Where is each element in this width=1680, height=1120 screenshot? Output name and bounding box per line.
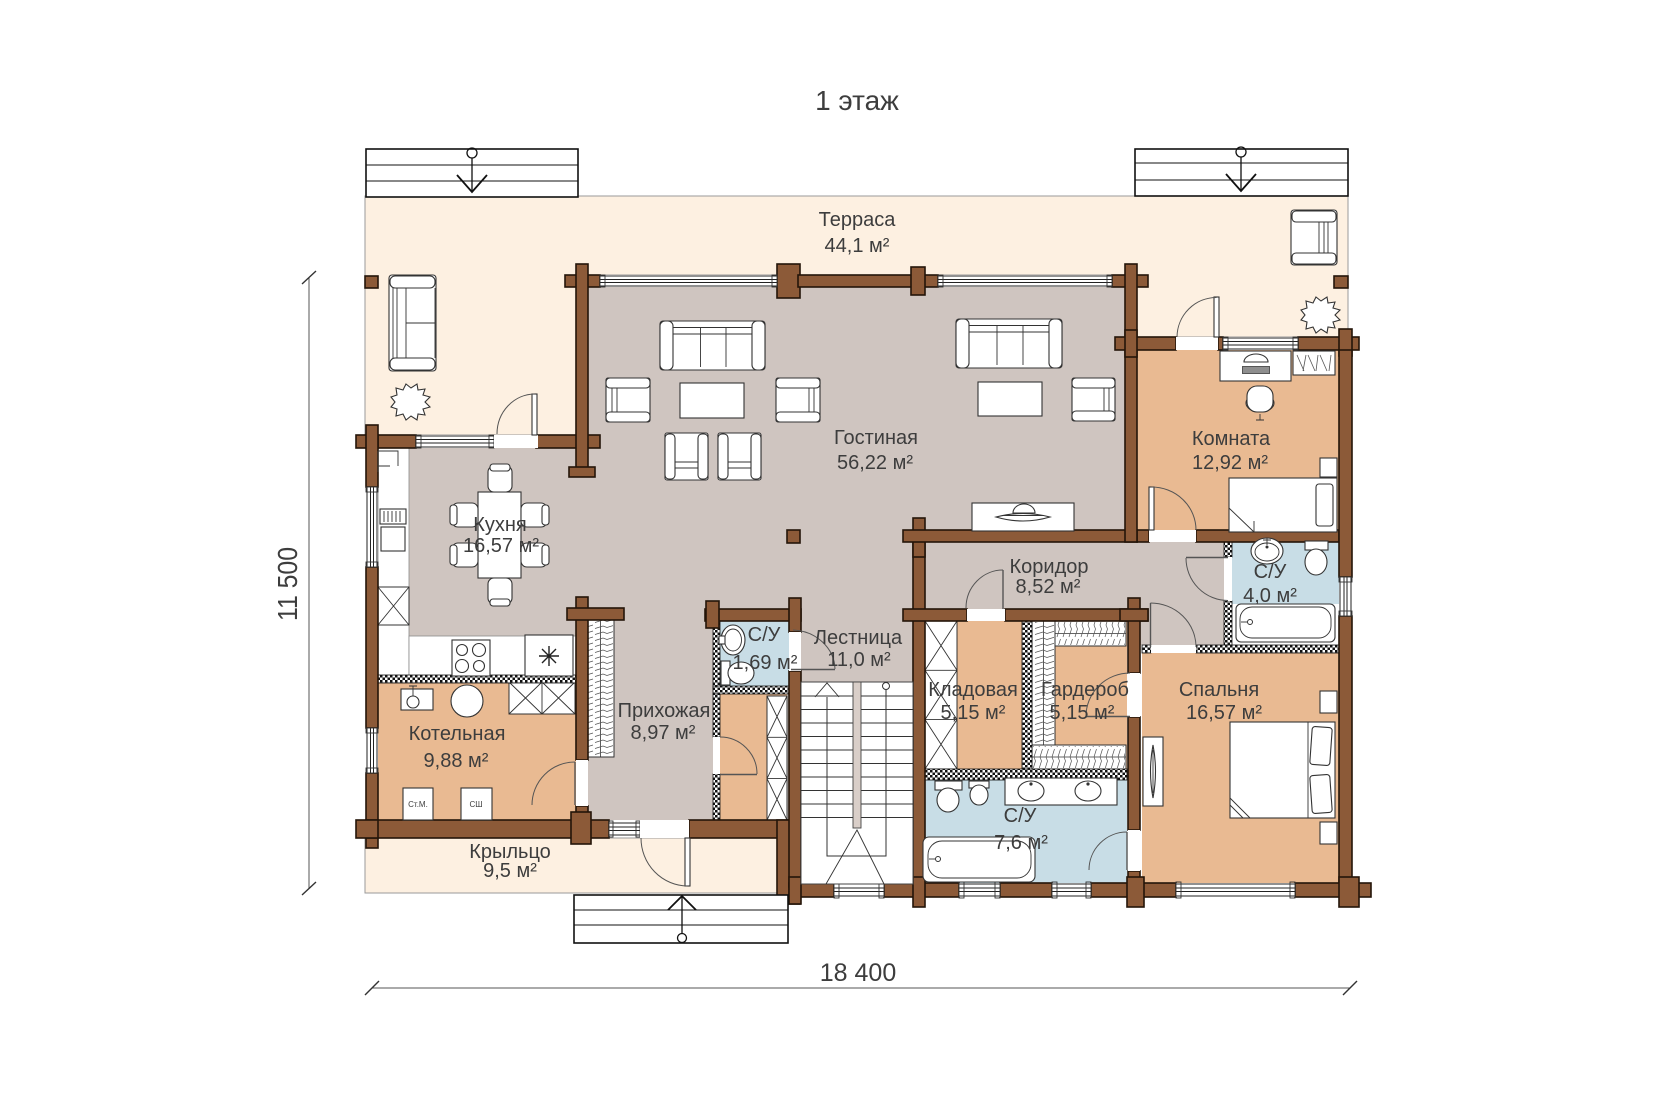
svg-text:Гостиная: Гостиная (834, 427, 918, 449)
svg-text:Спальня: Спальня (1179, 679, 1259, 701)
svg-text:5,15 м²: 5,15 м² (941, 702, 1006, 724)
svg-text:Котельная: Котельная (409, 723, 506, 745)
svg-text:Прихожая: Прихожая (618, 700, 711, 722)
svg-text:16,57 м²: 16,57 м² (1186, 702, 1262, 724)
svg-text:С/У: С/У (748, 624, 781, 646)
svg-text:1 этаж: 1 этаж (815, 85, 899, 116)
svg-text:9,88 м²: 9,88 м² (424, 750, 489, 772)
svg-text:4,0 м²: 4,0 м² (1243, 585, 1297, 607)
svg-text:Лестница: Лестница (814, 627, 903, 649)
svg-text:16,57 м²: 16,57 м² (463, 535, 539, 557)
svg-text:56,22 м²: 56,22 м² (837, 452, 913, 474)
svg-text:Кладовая: Кладовая (928, 679, 1018, 701)
svg-text:8,52 м²: 8,52 м² (1016, 576, 1081, 598)
svg-text:44,1 м²: 44,1 м² (825, 235, 890, 257)
svg-text:11,0 м²: 11,0 м² (827, 649, 891, 671)
svg-text:Кухня: Кухня (473, 514, 527, 536)
svg-text:С/У: С/У (1004, 805, 1037, 827)
svg-text:СШ: СШ (469, 800, 482, 809)
svg-text:1,69 м²: 1,69 м² (733, 652, 798, 674)
svg-text:Комната: Комната (1192, 428, 1271, 450)
svg-text:7,6 м²: 7,6 м² (994, 832, 1048, 854)
svg-text:9,5 м²: 9,5 м² (483, 860, 537, 882)
svg-text:11 500: 11 500 (272, 547, 303, 621)
svg-text:С/У: С/У (1254, 561, 1287, 583)
svg-text:18 400: 18 400 (820, 959, 896, 987)
svg-text:Гардероб: Гардероб (1041, 679, 1129, 701)
svg-text:Ст.М.: Ст.М. (408, 800, 428, 809)
svg-text:Коридор: Коридор (1010, 556, 1089, 578)
svg-text:Терраса: Терраса (819, 209, 897, 231)
svg-text:8,97 м²: 8,97 м² (631, 722, 696, 744)
svg-text:5,15 м²: 5,15 м² (1050, 702, 1115, 724)
svg-text:12,92 м²: 12,92 м² (1192, 452, 1268, 474)
